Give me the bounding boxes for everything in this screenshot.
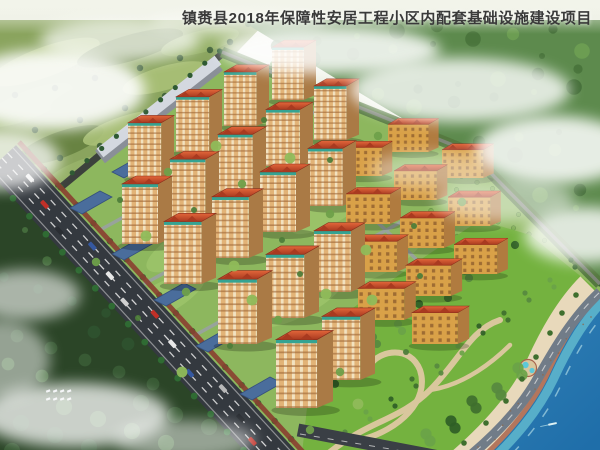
hedge-tree xyxy=(143,109,148,114)
project-title: 镇赉县2018年保障性安居工程小区内配套基础设施建设项目 xyxy=(182,7,592,28)
tree xyxy=(526,297,531,302)
tree xyxy=(227,343,233,349)
tree xyxy=(297,271,303,277)
tree xyxy=(367,295,378,306)
hedge-tree xyxy=(70,170,75,175)
tree xyxy=(141,231,152,242)
beach-speck xyxy=(565,338,567,340)
tree xyxy=(327,157,333,163)
street-tree xyxy=(191,393,198,400)
tree xyxy=(137,65,143,71)
beach-speck xyxy=(502,424,504,426)
tree xyxy=(261,117,267,123)
beach-speck xyxy=(477,446,479,448)
tree xyxy=(505,317,510,322)
hedge-tree xyxy=(114,134,119,139)
tree xyxy=(551,284,556,289)
street-tree xyxy=(547,330,553,336)
tree xyxy=(177,367,188,378)
tree xyxy=(424,435,435,446)
tree xyxy=(42,256,51,265)
tree xyxy=(117,197,123,203)
tree xyxy=(392,403,397,408)
tree xyxy=(285,153,296,164)
tree xyxy=(409,376,414,381)
mist-cloud xyxy=(370,152,490,188)
tree xyxy=(470,402,481,413)
street-tree xyxy=(141,339,148,346)
tree xyxy=(101,308,110,317)
tree xyxy=(306,426,314,434)
tree xyxy=(22,227,28,233)
beach-speck xyxy=(582,323,584,325)
street-tree xyxy=(483,420,489,426)
tree xyxy=(135,315,141,321)
tree xyxy=(388,396,393,401)
tree xyxy=(574,184,586,196)
architectural-rendering: 镇赉县2018年保障性安居工程小区内配套基础设施建设项目 xyxy=(0,0,600,450)
street-tree xyxy=(92,285,99,292)
tree xyxy=(363,409,368,414)
apartment-slab xyxy=(409,306,469,351)
tree xyxy=(547,277,552,282)
beach-speck xyxy=(558,352,560,354)
tree xyxy=(353,399,364,410)
tree xyxy=(164,168,172,176)
tree xyxy=(147,378,160,391)
street-tree xyxy=(125,321,132,328)
tree xyxy=(417,273,423,279)
tree xyxy=(211,141,222,152)
tree xyxy=(572,264,577,269)
tree xyxy=(113,366,126,379)
tree xyxy=(459,350,464,355)
tree xyxy=(411,223,417,229)
tree xyxy=(539,53,545,59)
tree xyxy=(522,290,527,295)
tree xyxy=(238,180,246,188)
tree xyxy=(574,43,590,59)
hedge-tree xyxy=(99,146,104,151)
street-tree xyxy=(503,398,509,404)
hedge-tree xyxy=(158,97,163,102)
street-tree xyxy=(108,303,115,310)
tree xyxy=(413,383,418,388)
street-tree xyxy=(519,376,525,382)
tree xyxy=(279,237,285,243)
street-tree xyxy=(59,249,66,256)
tree xyxy=(122,338,135,351)
beach-speck xyxy=(534,388,536,390)
aerial-site-view xyxy=(0,0,600,450)
street-tree xyxy=(461,440,467,446)
street-tree xyxy=(158,357,165,364)
tree xyxy=(361,245,372,256)
tree xyxy=(207,47,213,53)
tree xyxy=(229,261,240,272)
beach-speck xyxy=(510,410,512,412)
beach-speck xyxy=(542,374,544,376)
street-tree xyxy=(207,411,214,418)
tree xyxy=(374,132,382,140)
tree xyxy=(438,370,443,375)
tree xyxy=(480,330,485,335)
beach-speck xyxy=(590,316,592,318)
tree xyxy=(449,422,460,433)
hedge-tree xyxy=(173,85,178,90)
tree xyxy=(79,354,92,367)
hedge-tree xyxy=(187,73,192,78)
street-tree xyxy=(559,310,565,316)
hedge-tree xyxy=(84,158,89,163)
tree xyxy=(274,316,282,324)
beach-speck xyxy=(550,360,552,362)
tree xyxy=(476,323,481,328)
street-tree xyxy=(10,195,17,202)
mist-cloud xyxy=(350,58,570,122)
tree xyxy=(191,207,197,213)
tree xyxy=(336,368,344,376)
plaza-pool xyxy=(529,368,534,373)
tree xyxy=(326,210,334,218)
tree xyxy=(247,295,258,306)
tree xyxy=(434,363,439,368)
hedge-tree xyxy=(202,61,207,66)
tree xyxy=(501,310,506,315)
street-tree xyxy=(573,292,579,298)
tree xyxy=(182,288,190,296)
tree xyxy=(403,349,409,355)
tree xyxy=(511,241,519,249)
beach-speck xyxy=(494,439,496,441)
tree xyxy=(88,326,101,339)
tree xyxy=(92,258,100,266)
tree xyxy=(177,55,183,61)
tree xyxy=(398,327,406,335)
street-tree xyxy=(533,354,539,360)
beach-speck xyxy=(517,403,519,405)
street-tree xyxy=(26,213,33,220)
street-tree xyxy=(43,231,50,238)
street-tree xyxy=(75,267,82,274)
tree xyxy=(321,289,332,300)
tree xyxy=(367,416,372,421)
tree xyxy=(573,64,582,73)
